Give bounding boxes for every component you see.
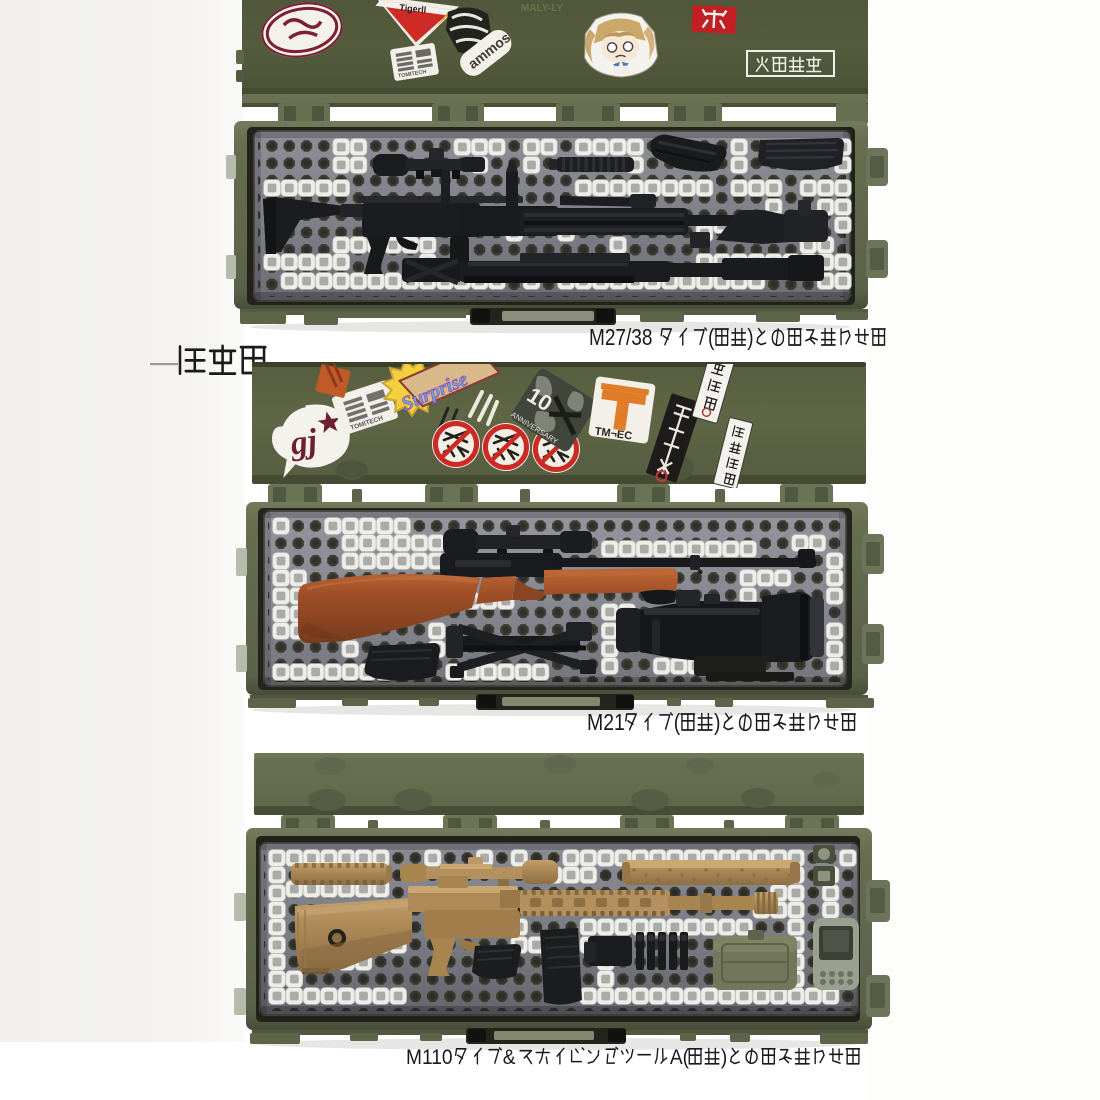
- svg-text:(: (: [674, 709, 680, 735]
- svg-text:(: (: [708, 325, 714, 350]
- svg-text:M110: M110: [406, 1046, 453, 1069]
- svg-text:): ): [747, 325, 753, 350]
- svg-text:M21: M21: [587, 709, 625, 735]
- svg-text:gj: gj: [287, 422, 320, 463]
- svg-text:): ): [714, 709, 720, 735]
- svg-text:MALY-LY: MALY-LY: [521, 3, 563, 14]
- svg-text:&: &: [503, 1046, 516, 1069]
- svg-text:M27/38: M27/38: [589, 325, 652, 350]
- svg-text:): ): [721, 1046, 727, 1069]
- svg-text:A(: A(: [670, 1046, 689, 1069]
